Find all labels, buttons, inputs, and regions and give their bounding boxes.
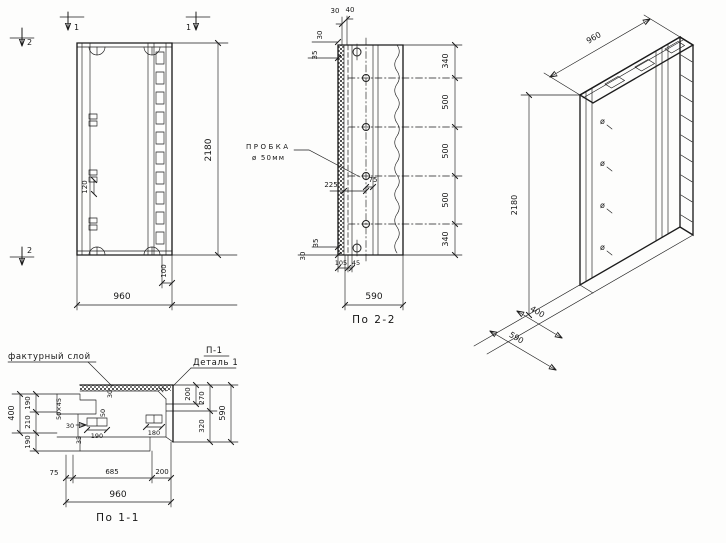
section-1-1-caption: По 1-1 [96,512,140,524]
dim-seg-500-3: 500 [441,192,450,207]
iso-hole-marks: ø ø ø ø [600,117,612,255]
section-mark-2-top: 2 [27,38,32,47]
section-mark-2-bottom: 2 [27,246,32,255]
section-mark-1-left: 1 [74,23,79,32]
dim-590: 590 [365,292,382,302]
iso-dim-400: 400 [528,304,546,320]
dim-210: 210 [24,415,32,428]
isometric-dimensions: 960 2180 400 590 [474,15,693,370]
label-facing-layer: фактурный слой [8,352,91,362]
front-view-dimensions: 2180 960 100 120 [77,43,237,310]
dim-50x45: 50×45 [55,398,63,420]
panel-drawing-svg: 2180 960 100 120 1 1 2 2 [0,0,726,543]
dim-685: 685 [105,468,118,476]
dim-190-bottom: 190 [24,435,32,448]
dim-rot-30: 30 [106,390,114,398]
plug-leader-line [294,150,360,177]
drawing-sheet: 2180 960 100 120 1 1 2 2 [0,0,726,543]
section-1-1-small-dims: 30 35 50×45 30 50 [55,390,114,444]
iso-front-seams [586,44,668,282]
hole-symbol-1: ø [600,117,605,126]
isometric-view: ø ø ø ø 960 2180 400 590 [474,15,693,370]
section-2-2-view: ПРОБКА ø 50мм 30 40 30 35 225 75 340 [246,6,462,326]
section-inner-lines [344,45,378,255]
facing-layer-hatch-plan [80,386,171,392]
section-cut-marks: 1 1 2 2 [10,12,210,265]
iso-dim-590: 590 [507,330,525,346]
insulation-wavy-line [395,45,400,253]
dim-seg-340-bottom: 340 [441,231,450,246]
front-elevation-view: 2180 960 100 120 1 1 2 2 [10,12,237,310]
plan-inner-lines [57,437,166,451]
dim-top-40: 40 [346,6,355,14]
iso-top-slots [605,42,685,89]
section-1-1-bottom-dims: 75 685 200 960 [50,442,171,507]
section-1-1-right-dims: 200 270 320 590 [166,385,238,442]
dim-200-right: 200 [184,387,192,400]
dim-320: 320 [198,419,206,432]
dim-225: 225 [324,181,337,189]
iso-top-face [580,37,693,103]
dim-100: 100 [160,264,168,277]
plan-right-return-inner [166,399,173,442]
dim-height-2180: 2180 [204,138,214,161]
label-p1: П-1 [206,346,223,356]
detail-leader [173,368,191,386]
lifting-notches [89,47,160,255]
section-2-2-caption: По 2-2 [352,314,396,326]
iso-side-ladder [681,55,692,222]
dim-rot-50: 50 [99,409,107,417]
dim-45: 45 [352,259,360,267]
section-2-2-dimensions: 30 40 30 35 225 75 340 500 500 500 340 3… [298,6,462,310]
dim-590-right: 590 [218,405,227,420]
dim-180-anchor: 180 [148,429,160,437]
extension-lines [77,43,237,310]
label-detail-1: Деталь 1 [193,358,238,368]
dim-seg-500-1: 500 [441,94,450,109]
section-1-1-labels: фактурный слой П-1 Деталь 1 [8,346,238,386]
dim-bot-35: 35 [312,239,320,248]
dim-top-30: 30 [331,7,340,15]
dim-190-top: 190 [24,396,32,409]
dim-75: 75 [369,176,378,184]
iso-dim-960: 960 [585,30,603,45]
dim-190-anchor: 190 [91,432,103,440]
dim-400: 400 [7,405,16,420]
iso-bottom-edges [580,227,693,293]
hole-symbol-3: ø [600,201,605,210]
dim-bot-30: 30 [299,252,307,261]
section-1-1-view: 190 180 30 35 50×45 30 50 400 190 210 19… [7,346,238,524]
dim-960-bottom: 960 [109,490,126,500]
dim-120: 120 [81,180,89,193]
plug-label-line1: ПРОБКА [246,143,291,151]
dim-left-35: 35 [311,51,319,60]
hole-symbol-2: ø [600,159,605,168]
anchor-detail-right: 180 [146,415,162,437]
channel-ladder-pattern [156,52,164,244]
iso-dim-2180: 2180 [510,195,519,215]
dim-200-bottom: 200 [155,468,168,476]
dim-left-30: 30 [316,31,324,40]
plug-label-line2: ø 50мм [252,154,285,162]
section-mark-1-right: 1 [186,23,191,32]
dim-width-960: 960 [113,292,130,302]
dim-75: 75 [50,469,59,477]
dim-270: 270 [198,391,206,404]
iso-side-face [680,37,693,235]
hole-symbol-4: ø [600,243,605,252]
iso-front-face [580,37,680,285]
dim-105: 105 [335,259,347,267]
facing-layer-leader [88,362,112,386]
dim-35-rot: 35 [75,436,83,444]
dim-seg-500-2: 500 [441,143,450,158]
facing-layer-hatch [338,45,344,255]
dim-30-arrow: 30 [66,422,74,430]
dim-seg-340-top: 340 [441,53,450,68]
